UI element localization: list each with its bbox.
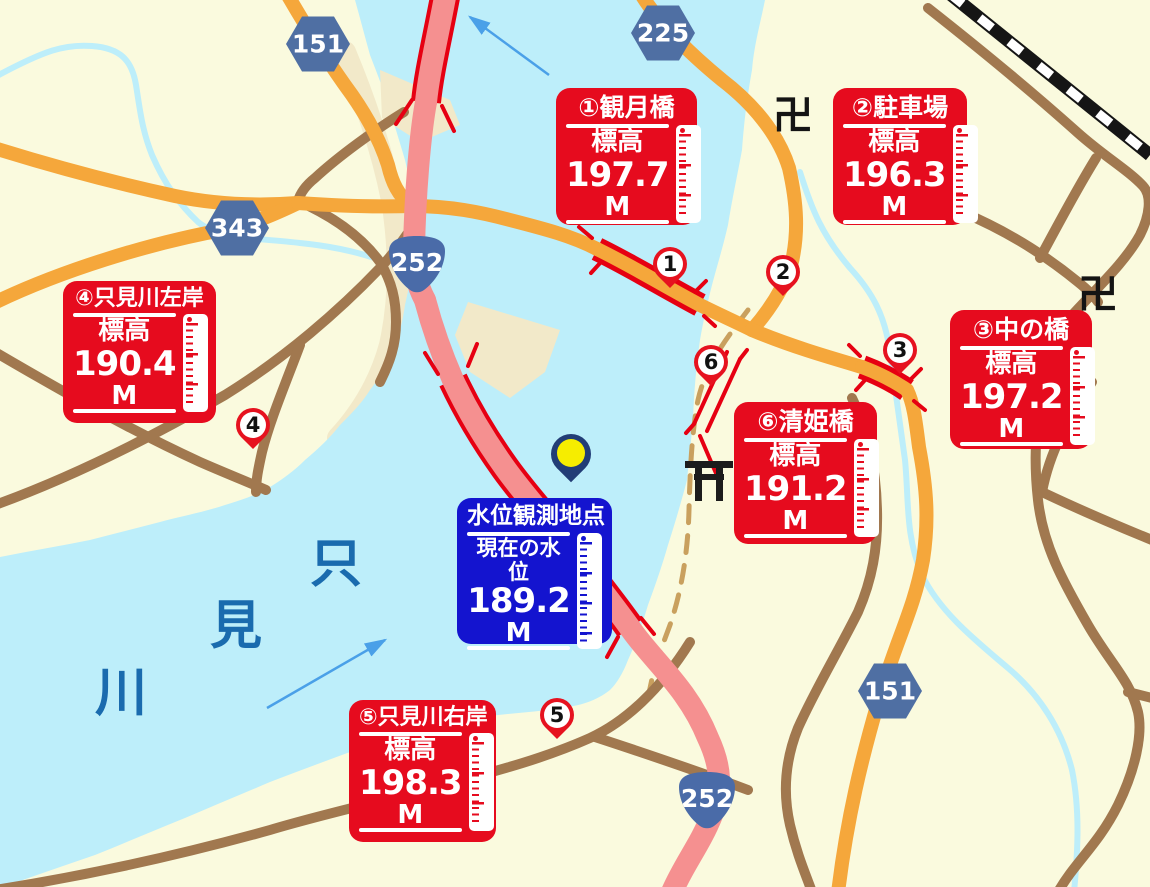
map-pin-3[interactable]: 3 — [881, 329, 919, 377]
elevation-value: 197.2 — [960, 380, 1063, 416]
elevation-unit: M — [843, 194, 946, 220]
elevation-unit: M — [566, 194, 669, 220]
elevation-value: 198.3 — [359, 766, 462, 802]
river-name-char: 見 — [210, 584, 262, 659]
pin-number: 3 — [887, 337, 913, 363]
station-box-naka-bridge: ③中の橋 標高 197.2 M — [950, 310, 1092, 449]
temple-manji-icon: 卍 — [1078, 275, 1118, 315]
route-number: 151 — [292, 30, 344, 59]
elevation-label: 標高 — [744, 442, 847, 472]
route-number: 252 — [391, 248, 443, 277]
elevation-unit: M — [744, 508, 847, 534]
station-title: ②駐車場 — [843, 93, 957, 123]
route-number: 225 — [637, 19, 689, 48]
elevation-unit: M — [960, 416, 1063, 442]
elevation-label: 標高 — [843, 128, 946, 158]
ruler-icon — [953, 125, 978, 223]
map-pin-4[interactable]: 4 — [234, 404, 272, 452]
map-pin-6[interactable]: 6 — [692, 341, 730, 389]
water-level-label: 現在の水位 — [467, 536, 570, 584]
ruler-icon — [1070, 347, 1095, 445]
station-box-kiyohime-bridge: ⑥清姫橋 標高 191.2 M — [734, 402, 877, 544]
water-level-unit: M — [467, 620, 570, 646]
route-number: 343 — [211, 214, 263, 243]
ruler-icon — [676, 125, 701, 223]
elevation-unit: M — [359, 802, 462, 828]
elevation-value: 190.4 — [73, 347, 176, 383]
station-title: ④只見川左岸 — [73, 286, 206, 312]
river-name-char: 川 — [95, 651, 147, 726]
route-number: 151 — [864, 677, 916, 706]
route-number: 252 — [681, 784, 733, 813]
elevation-value: 197.7 — [566, 158, 669, 194]
river-map: 卍 卍 只 見 川 151 225 343 252 151 252 1 2 3 … — [0, 0, 1150, 887]
map-pin-2[interactable]: 2 — [764, 251, 802, 299]
ruler-icon — [469, 733, 494, 831]
elevation-value: 191.2 — [744, 472, 847, 508]
station-box-left-bank: ④只見川左岸 標高 190.4 M — [63, 281, 216, 423]
elevation-label: 標高 — [73, 317, 176, 347]
shrine-torii-icon — [688, 461, 730, 501]
observation-box: 水位観測地点 現在の水位 189.2 M — [457, 498, 612, 644]
station-title: ③中の橋 — [960, 315, 1082, 345]
elevation-value: 196.3 — [843, 158, 946, 194]
ruler-icon — [183, 314, 208, 412]
water-level-value: 189.2 — [467, 584, 570, 620]
station-box-right-bank: ⑤只見川右岸 標高 198.3 M — [349, 700, 496, 842]
elevation-unit: M — [73, 383, 176, 409]
map-pin-5[interactable]: 5 — [538, 694, 576, 742]
observation-point-pin[interactable] — [548, 430, 594, 488]
pin-dot — [557, 439, 585, 467]
observation-title: 水位観測地点 — [467, 503, 602, 531]
river-name-char: 只 — [310, 522, 362, 597]
elevation-label: 標高 — [566, 128, 669, 158]
station-title: ①観月橋 — [566, 93, 687, 123]
pin-number: 2 — [770, 259, 796, 285]
elevation-label: 標高 — [359, 736, 462, 766]
pin-number: 5 — [544, 702, 570, 728]
elevation-label: 標高 — [960, 350, 1063, 380]
map-pin-1[interactable]: 1 — [651, 243, 689, 291]
station-title: ⑤只見川右岸 — [359, 705, 486, 731]
pin-number: 4 — [240, 412, 266, 438]
pin-number: 1 — [657, 251, 683, 277]
pin-number: 6 — [698, 349, 724, 375]
station-title: ⑥清姫橋 — [744, 407, 867, 437]
ruler-icon — [854, 439, 879, 537]
ruler-icon — [577, 533, 602, 649]
temple-manji-icon: 卍 — [773, 96, 813, 136]
station-box-parking: ②駐車場 標高 196.3 M — [833, 88, 967, 225]
station-box-kangetsu-bridge: ①観月橋 標高 197.7 M — [556, 88, 697, 225]
